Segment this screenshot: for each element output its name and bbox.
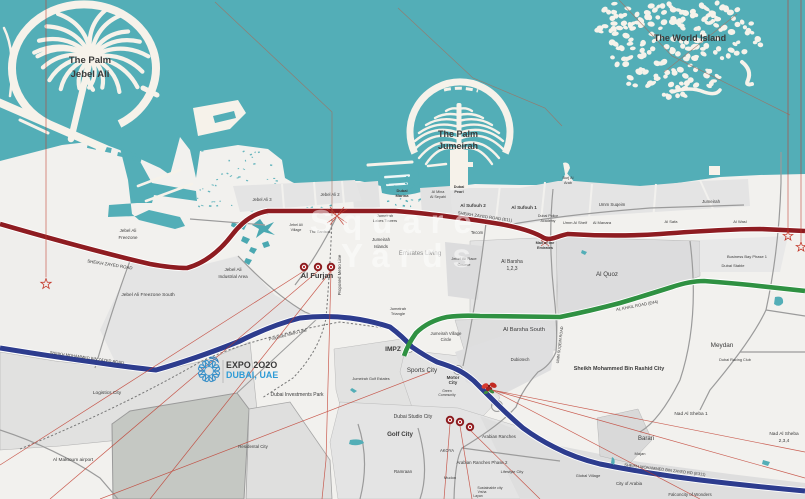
svg-text:Dubai Police: Dubai Police (538, 214, 558, 218)
svg-text:Academy: Academy (541, 219, 556, 223)
svg-text:Jumeirah Golf Estates: Jumeirah Golf Estates (352, 377, 389, 381)
svg-text:Jebel Ali Freezone South: Jebel Ali Freezone South (121, 292, 175, 298)
svg-text:Mudon: Mudon (444, 475, 456, 480)
svg-text:Al Barsha South: Al Barsha South (503, 327, 545, 333)
svg-text:Industrial Area: Industrial Area (218, 274, 248, 279)
svg-text:Umm Suqeim: Umm Suqeim (599, 202, 626, 207)
svg-text:Majan: Majan (635, 451, 646, 456)
svg-text:Community: Community (438, 393, 455, 397)
svg-text:City of Arabia: City of Arabia (616, 481, 643, 486)
svg-text:Meydan: Meydan (711, 342, 734, 349)
svg-text:Dubai Studio City: Dubai Studio City (394, 414, 433, 420)
svg-text:Jumeirah: Jumeirah (702, 199, 721, 204)
svg-text:Nad Al Sheba: Nad Al Sheba (769, 431, 799, 437)
svg-text:AKOYA: AKOYA (440, 448, 454, 453)
svg-text:City: City (449, 380, 458, 385)
svg-text:Falconcity of Wonders: Falconcity of Wonders (668, 492, 712, 497)
svg-text:Square: Square (310, 203, 482, 240)
svg-text:Jumeirah Village: Jumeirah Village (431, 331, 463, 336)
svg-text:The Palm: The Palm (69, 55, 111, 66)
svg-text:EXPO 2O2O: EXPO 2O2O (226, 360, 277, 370)
svg-text:Al Furjan: Al Furjan (301, 271, 334, 280)
svg-text:Nad Al Sheba 1: Nad Al Sheba 1 (674, 411, 708, 417)
svg-text:Dubiotech: Dubiotech (511, 357, 531, 362)
svg-text:Dubai Investments Park: Dubai Investments Park (270, 392, 324, 398)
svg-text:Jebel Ali 2: Jebel Ali 2 (320, 192, 340, 197)
svg-text:1,2,3: 1,2,3 (506, 266, 517, 272)
svg-text:Sheikh Mohammed Bin Rashid Cit: Sheikh Mohammed Bin Rashid City (574, 366, 664, 372)
svg-text:The World Island: The World Island (654, 33, 726, 43)
svg-text:Ramraan: Ramraan (394, 469, 413, 474)
svg-text:Dubai Racing Club: Dubai Racing Club (719, 358, 751, 362)
svg-text:Golf City: Golf City (387, 431, 413, 438)
svg-text:Circle: Circle (441, 337, 452, 342)
svg-text:IMPZ: IMPZ (385, 346, 401, 353)
svg-text:Pearl: Pearl (454, 190, 463, 194)
svg-text:Arabian Ranches: Arabian Ranches (482, 434, 516, 439)
svg-text:Al Manara: Al Manara (593, 220, 612, 225)
svg-text:Al Sufouh 1: Al Sufouh 1 (511, 205, 537, 210)
svg-text:Al Quoz: Al Quoz (596, 271, 618, 278)
svg-text:Arab: Arab (564, 181, 572, 185)
svg-text:Mall of the: Mall of the (536, 241, 555, 245)
svg-text:Jebel Ali: Jebel Ali (224, 267, 241, 272)
svg-text:Dubai Stable: Dubai Stable (722, 263, 746, 268)
svg-text:Dubai: Dubai (454, 185, 465, 189)
svg-text:Global Village: Global Village (576, 473, 601, 478)
svg-text:Al Wasl: Al Wasl (733, 219, 747, 224)
svg-text:Burj Al: Burj Al (563, 176, 574, 180)
svg-text:Lifestyle City: Lifestyle City (501, 469, 524, 474)
svg-text:Jebel Ali: Jebel Ali (120, 228, 137, 233)
svg-text:Business Bay Phase 1: Business Bay Phase 1 (727, 254, 768, 259)
svg-text:Barari: Barari (638, 436, 654, 442)
svg-text:DUBAI, UAE: DUBAI, UAE (226, 370, 278, 380)
svg-text:Jebel Ali: Jebel Ali (71, 69, 110, 80)
svg-text:Residental City: Residental City (238, 444, 268, 449)
svg-text:Marina: Marina (396, 193, 410, 198)
svg-text:Umm Al Sheif: Umm Al Sheif (563, 220, 588, 225)
svg-text:Al Barsha: Al Barsha (501, 259, 523, 265)
svg-text:Jebel Ali: Jebel Ali (289, 223, 303, 227)
svg-text:2,3,4: 2,3,4 (779, 438, 790, 444)
svg-text:Al Safa: Al Safa (665, 219, 679, 224)
svg-text:Triangle: Triangle (391, 311, 406, 316)
svg-text:Village: Village (291, 228, 302, 232)
svg-text:Al Maktoum airport: Al Maktoum airport (53, 457, 94, 463)
svg-text:Jebel Ali 3: Jebel Ali 3 (252, 197, 272, 202)
svg-text:Freezone: Freezone (118, 235, 138, 240)
svg-text:The Palm: The Palm (438, 129, 478, 139)
svg-text:Yards: Yards (341, 237, 481, 274)
svg-text:Sports City: Sports City (407, 367, 438, 374)
svg-text:Al Seyahi: Al Seyahi (430, 195, 446, 199)
svg-text:Layan: Layan (473, 494, 482, 498)
svg-text:Logistics City: Logistics City (93, 390, 122, 396)
svg-text:Al Mina: Al Mina (432, 190, 446, 194)
svg-text:Jumeirah: Jumeirah (438, 141, 478, 151)
svg-text:Arabian Ranches Phase 2: Arabian Ranches Phase 2 (456, 460, 508, 465)
svg-text:Emirates: Emirates (537, 246, 553, 250)
